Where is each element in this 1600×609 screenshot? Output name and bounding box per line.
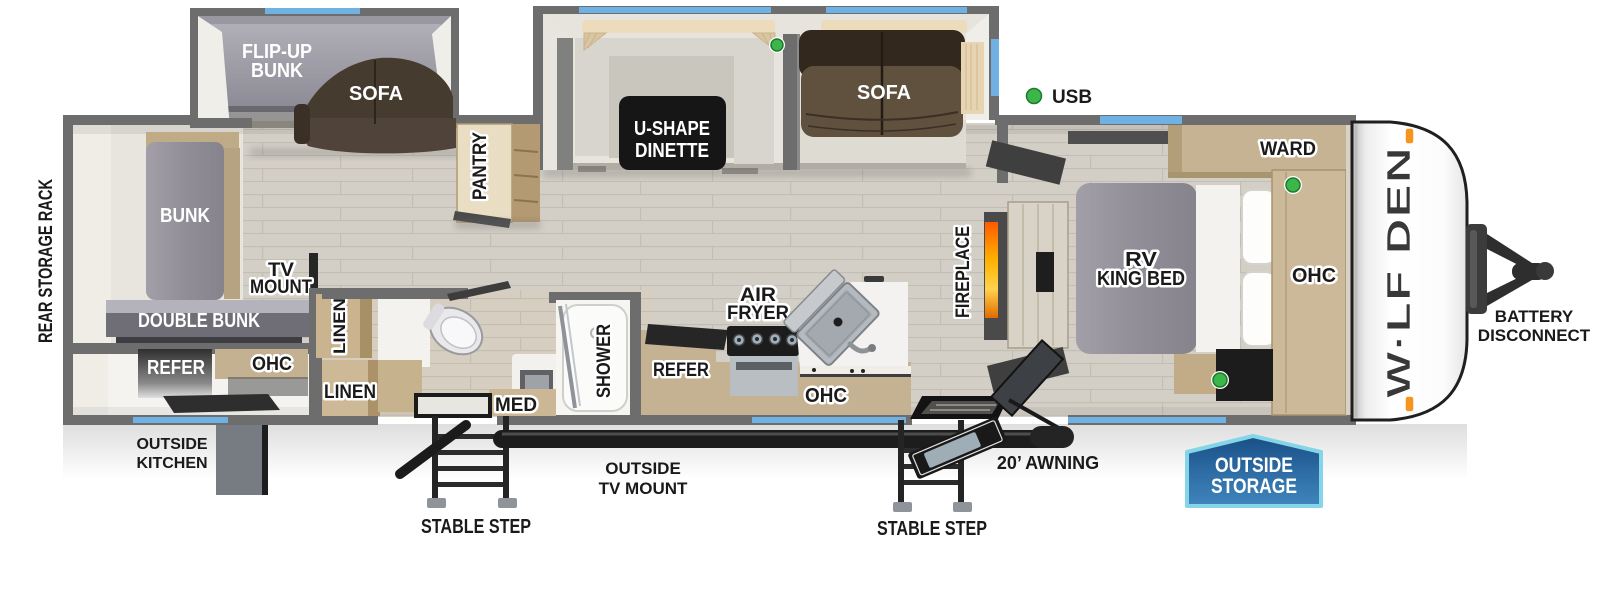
svg-text:REFER: REFER [653,360,709,381]
svg-text:STABLE STEP: STABLE STEP [877,518,987,540]
svg-text:MOUNT: MOUNT [250,277,312,298]
svg-text:SOFA: SOFA [349,83,403,105]
svg-text:OUTSIDE: OUTSIDE [1215,454,1293,477]
svg-text:BUNK: BUNK [160,205,210,227]
svg-text:KITCHEN: KITCHEN [136,455,207,472]
svg-text:TV MOUNT: TV MOUNT [599,479,688,498]
svg-text:BUNK: BUNK [251,60,303,82]
svg-text:REFER: REFER [147,357,205,379]
svg-text:W·LF DEN: W·LF DEN [1380,146,1417,398]
svg-text:FIREPLACE: FIREPLACE [953,226,974,318]
svg-text:DISCONNECT: DISCONNECT [1478,326,1591,345]
svg-text:STORAGE: STORAGE [1211,475,1297,498]
svg-text:SHOWER: SHOWER [594,324,615,398]
svg-text:REAR STORAGE RACK: REAR STORAGE RACK [36,179,57,343]
svg-text:OUTSIDE: OUTSIDE [605,459,681,478]
svg-text:OHC: OHC [1292,265,1336,287]
svg-text:PANTRY: PANTRY [470,132,491,200]
svg-text:OUTSIDE: OUTSIDE [136,436,207,453]
svg-text:BATTERY: BATTERY [1495,307,1574,326]
svg-text:KING BED: KING BED [1097,268,1185,290]
svg-text:USB: USB [1052,87,1092,108]
svg-text:WARD: WARD [1260,139,1316,160]
svg-text:LINEN: LINEN [324,382,376,403]
svg-text:MED: MED [495,395,537,416]
svg-text:DINETTE: DINETTE [635,140,709,162]
svg-text:OHC: OHC [805,385,847,407]
svg-text:DOUBLE BUNK: DOUBLE BUNK [138,310,260,332]
svg-text:U-SHAPE: U-SHAPE [634,118,710,140]
svg-text:SOFA: SOFA [857,82,911,104]
svg-text:OHC: OHC [252,354,292,375]
svg-text:LINEN: LINEN [330,298,349,354]
svg-text:FRYER: FRYER [727,303,789,324]
svg-text:20’ AWNING: 20’ AWNING [997,453,1099,473]
svg-text:STABLE STEP: STABLE STEP [421,516,531,538]
